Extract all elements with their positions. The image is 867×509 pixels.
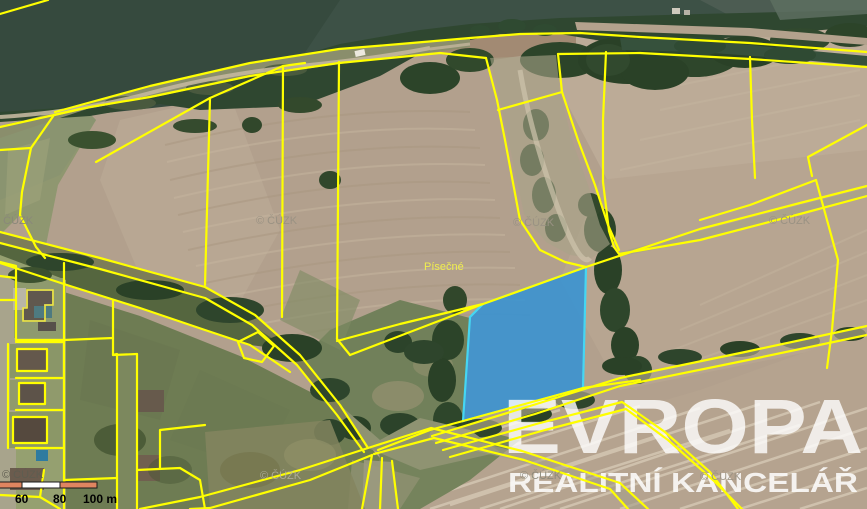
svg-text:© ČÚZK: © ČÚZK (520, 469, 562, 482)
svg-text:100 m: 100 m (83, 492, 117, 506)
svg-text:Písečné: Písečné (424, 261, 464, 273)
svg-text:60: 60 (15, 492, 29, 506)
svg-text:80: 80 (53, 492, 67, 506)
svg-text:© ČÚZK: © ČÚZK (2, 468, 44, 481)
svg-text:© ČÚZK: © ČÚZK (0, 214, 34, 227)
svg-text:© ČÚZK: © ČÚZK (700, 470, 742, 483)
svg-text:© ČÚZK: © ČÚZK (769, 214, 811, 227)
svg-text:© ČÚZK: © ČÚZK (256, 214, 298, 227)
svg-text:© ČÚZK: © ČÚZK (260, 469, 302, 482)
svg-text:© ČÚZK: © ČÚZK (513, 216, 555, 229)
